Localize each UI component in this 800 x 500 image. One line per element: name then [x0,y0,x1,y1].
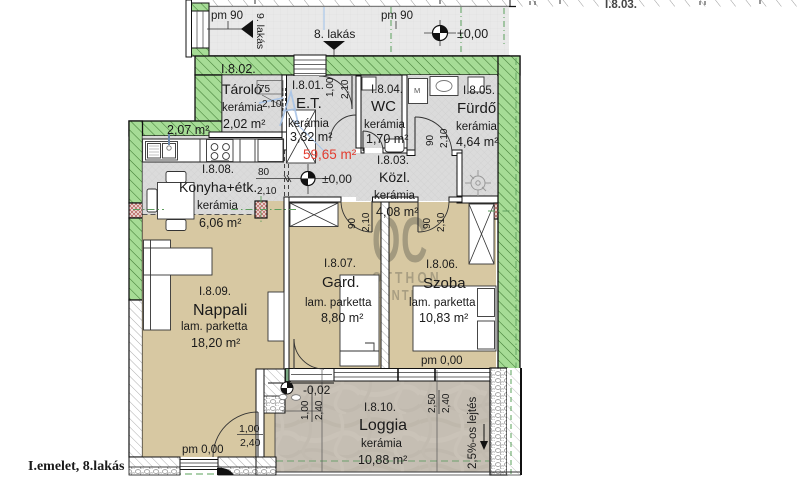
svg-text:I.8.04.: I.8.04. [371,84,403,96]
svg-text:2,10: 2,10 [262,99,282,110]
svg-text:kerámia: kerámia [197,200,239,212]
svg-text:3,32 m²: 3,32 m² [290,130,332,144]
svg-text:I.8.08.: I.8.08. [202,164,234,176]
svg-text:1,70 m²: 1,70 m² [366,132,408,146]
svg-text:18,20 m²: 18,20 m² [191,336,240,350]
svg-text:I.8.01.: I.8.01. [292,80,324,92]
svg-text:90: 90 [422,217,433,229]
svg-text:I.8.07.: I.8.07. [324,258,356,270]
svg-text:2,40: 2,40 [240,437,261,449]
svg-text:pm 90: pm 90 [381,10,413,22]
svg-text:-0,02: -0,02 [303,383,331,397]
svg-text:1,00: 1,00 [239,423,260,435]
svg-text:I.8.09.: I.8.09. [199,286,231,298]
svg-text:kerámia: kerámia [361,438,403,450]
svg-text:pm 90: pm 90 [211,10,243,22]
svg-text:kerámia: kerámia [374,190,416,202]
svg-text:kerámia: kerámia [456,121,498,133]
svg-text:I.8.05.: I.8.05. [463,85,495,97]
svg-text:I.8.02.: I.8.02. [221,62,256,76]
svg-text:90: 90 [425,134,436,146]
svg-text:10,88 m²: 10,88 m² [358,453,407,467]
svg-text:9. lakás: 9. lakás [254,13,266,49]
svg-text:lam. parketta: lam. parketta [305,297,372,309]
svg-text:M: M [414,86,420,95]
svg-text:Tároló: Tároló [222,81,262,97]
svg-text:kerámia: kerámia [364,119,406,131]
svg-text:6,06 m²: 6,06 m² [199,216,241,230]
svg-text:Szoba: Szoba [423,275,466,292]
svg-text:4,64 m²: 4,64 m² [456,135,498,149]
svg-text:2,10: 2,10 [340,79,351,99]
svg-text:I.8.06.: I.8.06. [426,259,458,271]
svg-text:2,10: 2,10 [436,212,447,232]
svg-text:pm 0,00: pm 0,00 [421,355,463,367]
svg-text:Nappali: Nappali [193,302,247,319]
svg-text:Fürdő: Fürdő [457,100,496,117]
svg-text:80: 80 [258,167,270,178]
svg-text:2,10: 2,10 [257,186,277,197]
svg-text:WC: WC [371,98,396,115]
svg-text:pm 0,00: pm 0,00 [182,444,224,456]
svg-text:2,10: 2,10 [361,212,372,232]
svg-text:2,5%-os lejtés: 2,5%-os lejtés [467,397,479,469]
svg-text:Közl.: Közl. [379,169,410,185]
svg-text:I.8.03.: I.8.03. [605,0,637,11]
svg-text:E.T.: E.T. [296,95,322,112]
svg-text:kerámia: kerámia [222,102,264,114]
svg-text:2,40: 2,40 [314,400,325,420]
svg-text:Konyha+étk.: Konyha+étk. [179,179,257,195]
svg-text:Gard.: Gard. [322,274,360,291]
svg-text:8. lakás: 8. lakás [314,27,355,41]
svg-text:2,50: 2,50 [427,393,438,413]
svg-text:2,07 m²: 2,07 m² [167,123,209,137]
svg-text:2,02 m²: 2,02 m² [223,117,265,131]
svg-text:75: 75 [259,84,271,95]
svg-text:2,10: 2,10 [439,128,450,148]
svg-text:I.8.03.: I.8.03. [377,155,409,167]
svg-text:4,08 m²: 4,08 m² [376,205,418,219]
svg-text:8,80 m²: 8,80 m² [321,311,363,325]
svg-text:I.8.10.: I.8.10. [364,402,396,414]
svg-text:±0,00: ±0,00 [322,172,352,186]
svg-text:I.emelet, 8.lakás: I.emelet, 8.lakás [28,459,125,474]
svg-text:10,83 m²: 10,83 m² [419,311,468,325]
svg-text:lam. parketta: lam. parketta [181,321,248,333]
svg-text:kerámia: kerámia [288,118,330,130]
svg-text:±0,00: ±0,00 [457,27,488,41]
svg-text:90: 90 [347,217,358,229]
svg-text:Loggia: Loggia [359,417,407,434]
svg-text:lam. parketta: lam. parketta [409,297,476,309]
svg-text:1,00: 1,00 [325,77,336,97]
svg-text:2,40: 2,40 [441,393,452,413]
svg-text:1,00: 1,00 [300,400,311,420]
svg-text:59,65 m²: 59,65 m² [303,147,357,162]
